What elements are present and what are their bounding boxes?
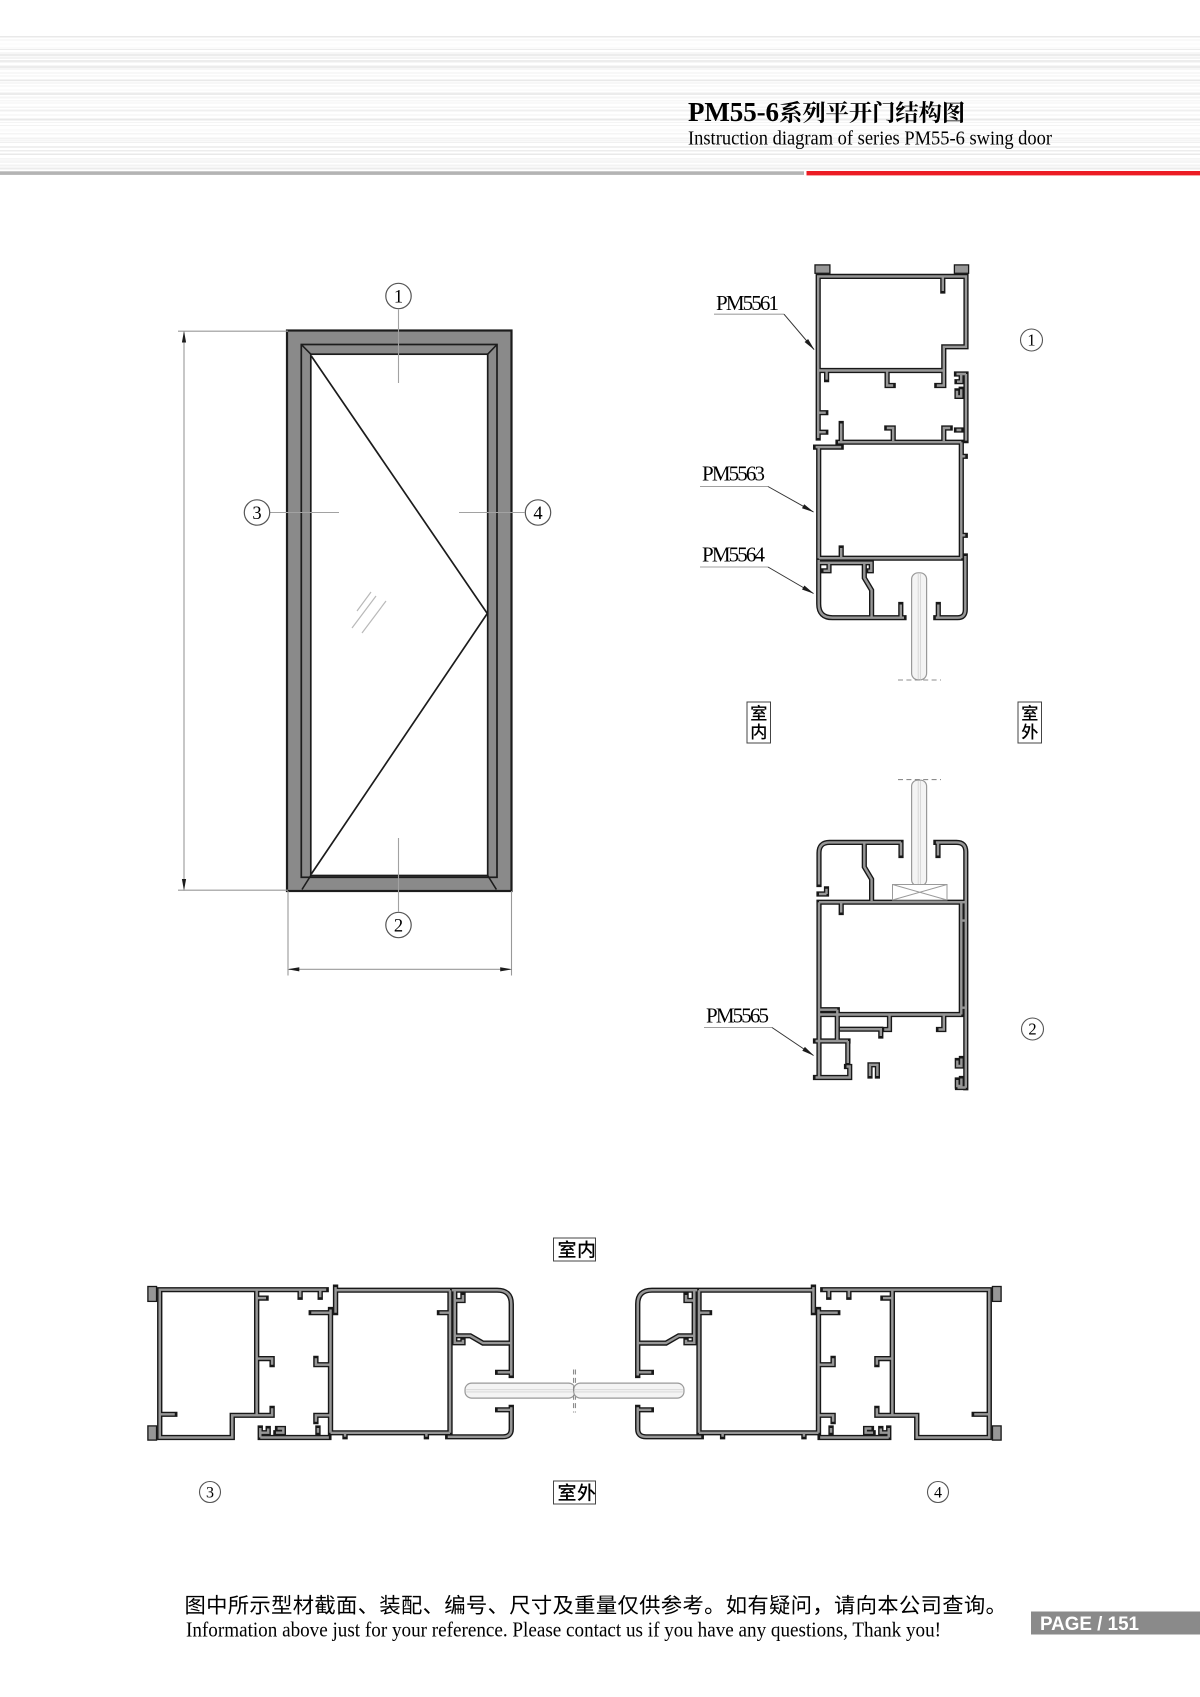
- svg-text:PM55-6: PM55-6: [688, 97, 779, 127]
- svg-text:PAGE / 151: PAGE / 151: [1040, 1614, 1139, 1635]
- svg-text:1: 1: [394, 287, 403, 307]
- svg-text:3: 3: [252, 504, 261, 524]
- svg-text:PM5561: PM5561: [716, 291, 779, 315]
- svg-text:PM5563: PM5563: [702, 462, 765, 486]
- svg-text:4: 4: [533, 504, 542, 524]
- svg-text:1: 1: [1027, 331, 1035, 350]
- svg-text:4: 4: [934, 1484, 942, 1501]
- svg-text:2: 2: [1028, 1020, 1036, 1039]
- svg-text:PM5565: PM5565: [706, 1004, 769, 1028]
- svg-text:Information above just for you: Information above just for your referenc…: [186, 1618, 941, 1642]
- svg-text:3: 3: [206, 1484, 214, 1501]
- svg-text:Instruction diagram of series: Instruction diagram of series PM55-6 swi…: [688, 129, 1052, 150]
- svg-text:PM5564: PM5564: [702, 543, 766, 567]
- svg-text:2: 2: [394, 916, 403, 936]
